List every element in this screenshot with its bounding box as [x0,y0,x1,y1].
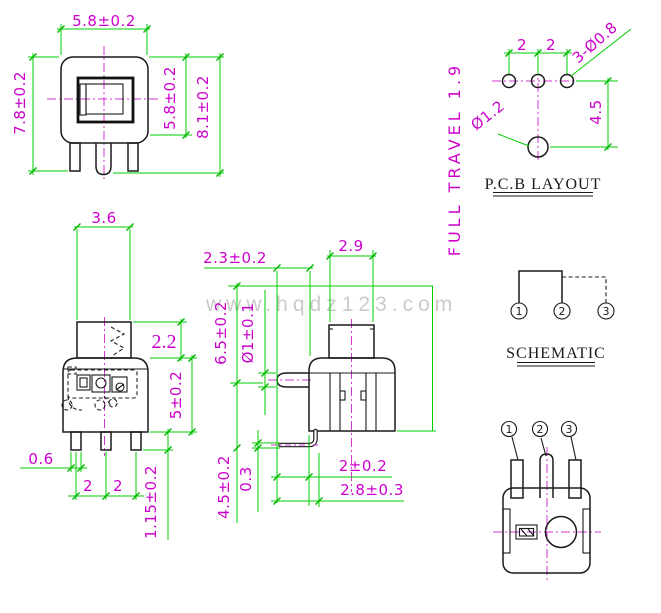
dim-wire-thickness: 0.3 [237,466,255,491]
pin-1-label: 1 [506,423,513,436]
schematic-dashed-link [562,277,606,303]
dim-total-height: 8.1±0.2 [194,75,212,139]
centerlines [493,447,601,582]
dim-pin-length: 1.15±0.2 [142,465,160,539]
part-outline [271,325,395,445]
full-travel-note: FULL TRAVEL 1.9 [445,62,464,257]
dim-body-height: 5±0.2 [167,371,185,419]
centerlines [492,66,580,163]
schematic-view: 1 2 3 SCHEMATIC [506,271,614,366]
center-hole-callout: Ø1.2 [467,97,508,134]
dim-pitch-right: 2 [113,477,123,495]
dim-pin-diameter: Ø1±0.1 [239,303,257,364]
dim-button-height: 2.2 [152,331,177,353]
dim-body-height: 5.8±0.2 [161,66,179,130]
technical-drawing-page: www.hqdz123.com [0,0,661,613]
dim-button-width: 2.9 [338,237,363,255]
centerlines [47,46,161,179]
dim-overall-height: 6.5±0.2 [212,301,230,365]
dim-pitch-right: 2 [546,36,556,54]
bent-pin [281,431,316,445]
dim-wire-span: 2.8±0.3 [340,481,404,499]
pin-3-label: 3 [603,305,610,318]
dim-left-height: 7.8±0.2 [11,71,29,135]
pin-callouts: 1 2 3 [502,422,577,461]
dim-pitch-left: 2 [83,477,93,495]
switch-drawing-canvas: www.hqdz123.com [0,0,661,613]
top-front-view: 5.8±0.2 7.8±0.2 5.8±0.2 8.1±0.2 [11,12,224,179]
part-outline [503,75,574,158]
pin-2-label: 2 [537,423,544,436]
pcb-layout-title: P.C.B LAYOUT [485,176,602,193]
dim-pin-width: 0.6 [28,450,53,468]
dim-pitch-left: 2 [517,36,527,54]
schematic-title: SCHEMATIC [506,345,606,362]
schematic-solid-link [519,271,562,303]
pin-3-label: 3 [566,423,573,436]
pcb-layout-view: 2 2 3-Ø0.8 4.5 Ø1.2 P.C.B LAYOUT [467,18,631,196]
pin-1-label: 1 [516,305,523,318]
dim-lower-height: 4.5±0.2 [215,455,233,519]
bottom-view: 1 2 3 [493,422,601,583]
front-view: 3.6 2.2 5±0.2 0.6 2 2 1.15±0.2 [20,209,197,540]
dim-top-width: 5.8±0.2 [72,12,136,30]
dim-pin-protrusion: 2.3±0.2 [203,249,267,267]
dim-wire-inset: 2±0.2 [339,457,387,475]
dim-button-width: 3.6 [91,209,116,227]
pin-2-label: 2 [559,305,566,318]
dim-row-offset: 4.5 [587,99,605,124]
side-view: 2.3±0.2 2.9 6.5±0.2 Ø1±0.1 4.5±0.2 0.3 2… [203,237,436,523]
